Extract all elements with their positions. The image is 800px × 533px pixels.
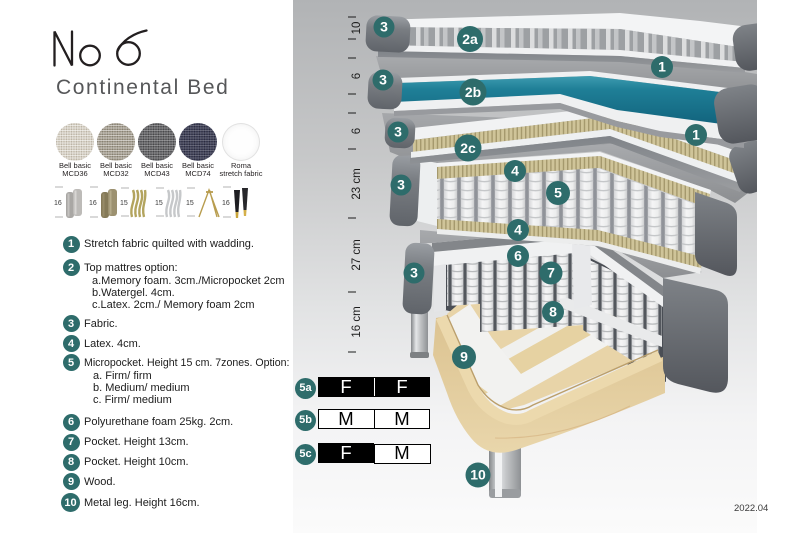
svg-text:15: 15 — [186, 200, 194, 207]
svg-text:6: 6 — [514, 248, 522, 264]
svg-text:5: 5 — [554, 185, 562, 201]
svg-text:3: 3 — [394, 124, 402, 140]
svg-text:16 cm: 16 cm — [351, 306, 363, 337]
svg-text:27 cm: 27 cm — [351, 239, 363, 270]
svg-text:2b: 2b — [465, 84, 481, 100]
svg-text:3: 3 — [397, 177, 405, 193]
svg-text:2c: 2c — [460, 140, 476, 156]
svg-text:16: 16 — [89, 200, 97, 207]
svg-text:6: 6 — [351, 73, 363, 79]
svg-text:23 cm: 23 cm — [351, 168, 363, 199]
svg-text:7: 7 — [547, 265, 555, 281]
svg-text:2a: 2a — [462, 31, 478, 47]
svg-text:8: 8 — [549, 304, 557, 320]
svg-text:9: 9 — [460, 349, 468, 365]
svg-text:6: 6 — [351, 128, 363, 134]
svg-text:15: 15 — [155, 200, 163, 207]
svg-text:4: 4 — [511, 163, 519, 179]
svg-text:10: 10 — [470, 467, 486, 483]
svg-text:16: 16 — [54, 200, 62, 207]
svg-text:16: 16 — [222, 200, 230, 207]
svg-text:3: 3 — [379, 72, 387, 88]
svg-text:1: 1 — [658, 59, 666, 75]
svg-text:3: 3 — [380, 19, 388, 35]
svg-text:4: 4 — [514, 222, 522, 238]
svg-text:3: 3 — [410, 265, 418, 281]
svg-text:10: 10 — [351, 22, 363, 35]
svg-text:15: 15 — [120, 200, 128, 207]
svg-text:1: 1 — [692, 127, 700, 143]
